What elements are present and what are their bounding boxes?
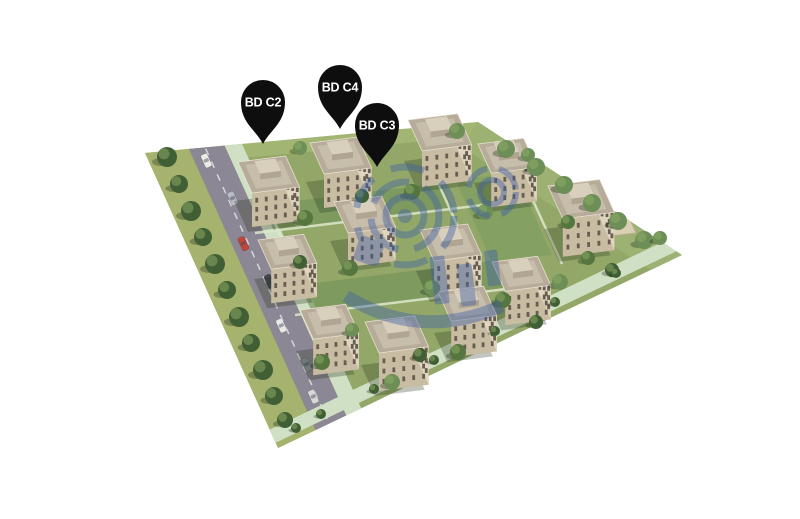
pin-label: BD C4: [322, 81, 359, 95]
map-pin-bd-c3[interactable]: BD C3: [347, 97, 407, 169]
pin-label: BD C3: [359, 119, 396, 133]
site-plan-render: BD C2BD C4BD C3: [0, 0, 800, 519]
aerial-render: [0, 0, 800, 519]
pin-label: BD C2: [245, 96, 282, 110]
pin-shape: [355, 103, 399, 167]
pin-shape: [241, 80, 285, 144]
map-pin-bd-c2[interactable]: BD C2: [233, 74, 293, 146]
